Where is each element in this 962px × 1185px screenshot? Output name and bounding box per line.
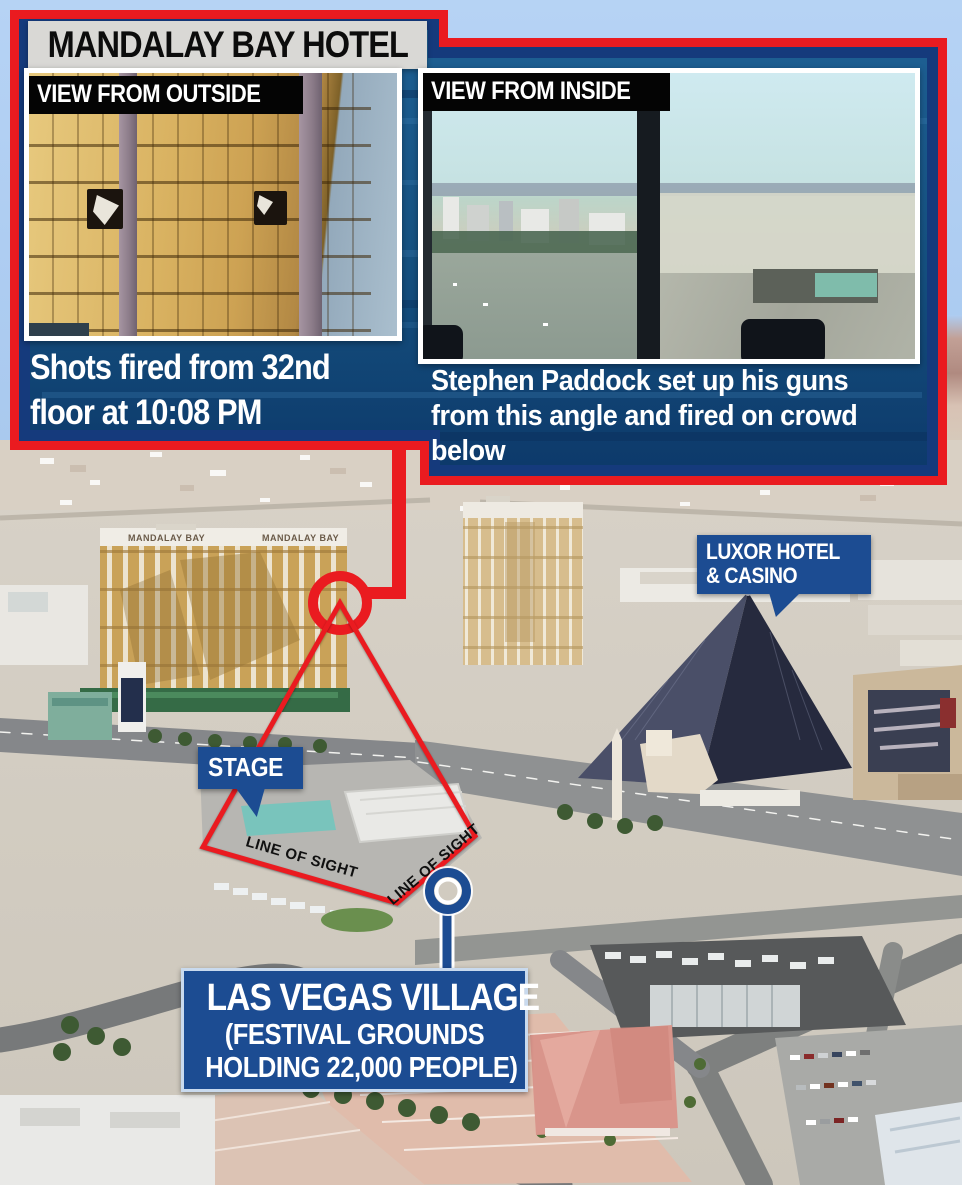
village-marker	[425, 868, 471, 974]
inside-photo-image: VIEW FROM INSIDE	[423, 73, 915, 359]
window-mullion	[637, 73, 660, 359]
inside-photo-label: VIEW FROM INSIDE	[423, 73, 670, 111]
las-vegas-village-label: LAS VEGAS VILLAGE (FESTIVAL GROUNDS HOLD…	[181, 968, 528, 1092]
outside-caption: Shots fired from 32nd floor at 10:08 PM	[30, 345, 435, 435]
broken-window-right	[254, 191, 287, 225]
broken-window-left	[87, 189, 123, 229]
outside-photo-image: VIEW FROM OUTSIDE	[29, 73, 397, 336]
luxor-label: LUXOR HOTEL & CASINO	[697, 535, 871, 594]
outside-photo-label: VIEW FROM OUTSIDE	[29, 76, 303, 114]
inside-photo: VIEW FROM INSIDE	[418, 68, 920, 364]
panel-title-bar: MANDALAY BAY HOTEL	[28, 21, 427, 69]
panel-title: MANDALAY BAY HOTEL	[47, 24, 407, 66]
inside-caption: Stephen Paddock set up his guns from thi…	[431, 364, 946, 469]
outside-photo: VIEW FROM OUTSIDE	[24, 68, 402, 341]
connector-line	[362, 441, 406, 599]
festival-grounds-from-window	[815, 273, 877, 297]
window-frame	[423, 73, 432, 359]
infographic: MANDALAY BAY MANDALAY BAY	[0, 0, 962, 1185]
stage-label: STAGE	[198, 747, 303, 789]
